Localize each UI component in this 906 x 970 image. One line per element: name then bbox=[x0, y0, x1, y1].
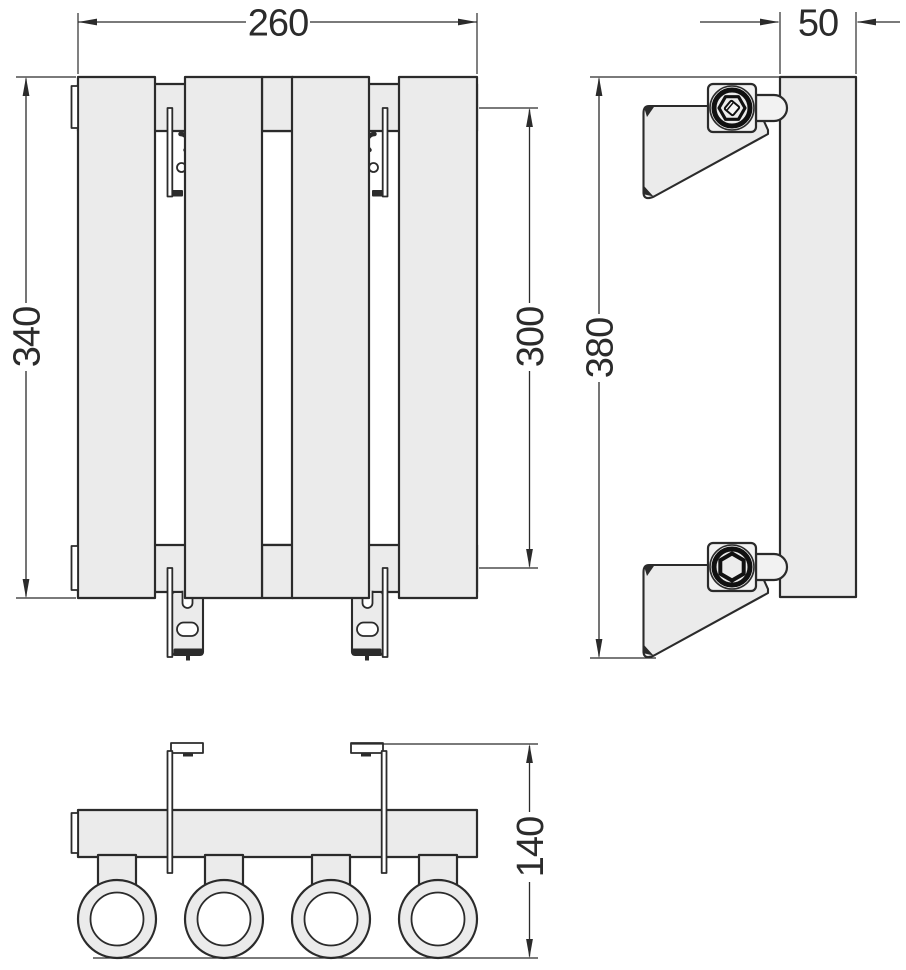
dim-arrowhead-left-icon bbox=[857, 19, 876, 26]
tube-section-inner bbox=[412, 893, 465, 946]
bracket-hook bbox=[171, 743, 203, 753]
bracket-foot-tick bbox=[186, 656, 190, 661]
dim-arrowhead-left-icon bbox=[78, 19, 97, 26]
bracket-oval-hole bbox=[177, 623, 198, 637]
dim-arrowhead-down-icon bbox=[526, 939, 533, 958]
tube-section-inner bbox=[198, 893, 251, 946]
radiator-panel-4 bbox=[399, 77, 477, 598]
radiator-panel-3 bbox=[292, 77, 369, 598]
bracket-rod bbox=[383, 108, 388, 197]
bracket-rod bbox=[382, 751, 387, 873]
dim-arrowhead-down-icon bbox=[526, 549, 533, 568]
dimension-port-spacing: 300 bbox=[479, 108, 552, 568]
bracket-rod bbox=[168, 568, 173, 657]
radiator-panel-2 bbox=[185, 77, 262, 598]
radiator-panel-1 bbox=[78, 77, 155, 598]
technical-drawing-page: 260 340 300 bbox=[0, 0, 906, 970]
plug-fitting-square-drive bbox=[708, 84, 756, 132]
dimension-side-depth: 50 bbox=[700, 3, 900, 74]
dim-arrowhead-right-icon bbox=[458, 19, 477, 26]
bracket-rod bbox=[168, 108, 173, 197]
bracket-rod bbox=[383, 568, 388, 657]
bracket-foot bbox=[352, 649, 382, 656]
bracket-rod bbox=[168, 751, 173, 873]
bottom-view bbox=[72, 743, 478, 958]
convector-fin-bottom bbox=[262, 545, 293, 598]
bracket-foot bbox=[174, 649, 204, 656]
dim-label-side-depth: 50 bbox=[798, 3, 838, 45]
side-tab bbox=[72, 813, 79, 853]
dimension-front-height: 340 bbox=[7, 77, 76, 598]
hex-plug bbox=[720, 554, 743, 581]
side-tab-top bbox=[72, 86, 79, 128]
bracket-oval-hole bbox=[357, 623, 378, 637]
dim-label-side-height: 380 bbox=[580, 318, 622, 378]
convector-fin-top bbox=[262, 77, 293, 131]
collector-bar bbox=[78, 810, 477, 857]
dim-label-front-width: 260 bbox=[248, 3, 308, 45]
technical-drawing-canvas: 260 340 300 bbox=[0, 0, 906, 970]
dim-label-front-height: 340 bbox=[7, 307, 49, 367]
bracket-hook-tick bbox=[183, 753, 193, 757]
side-view bbox=[643, 77, 857, 657]
tube-section-inner bbox=[91, 893, 144, 946]
dim-arrowhead-down-icon bbox=[596, 639, 603, 658]
dim-label-bottom-height: 140 bbox=[510, 817, 552, 877]
front-view bbox=[72, 77, 478, 661]
side-tab-bottom bbox=[72, 546, 79, 590]
dim-label-port-spacing: 300 bbox=[510, 307, 552, 367]
dim-arrowhead-up-icon bbox=[596, 77, 603, 96]
dimension-front-width: 260 bbox=[78, 3, 477, 74]
bracket-hook-tick bbox=[361, 753, 371, 757]
bracket-foot-tick bbox=[365, 656, 369, 661]
tube-section-inner bbox=[305, 893, 358, 946]
dim-arrowhead-up-icon bbox=[526, 744, 533, 763]
dim-arrowhead-up-icon bbox=[526, 108, 533, 127]
connection-stub bbox=[756, 554, 787, 580]
dim-arrowhead-right-icon bbox=[760, 19, 779, 26]
tube-sections bbox=[78, 880, 477, 958]
dim-arrowhead-up-icon bbox=[23, 77, 30, 96]
connection-stub bbox=[756, 95, 787, 121]
side-bracket-bottom bbox=[643, 543, 788, 657]
dim-arrowhead-down-icon bbox=[23, 579, 30, 598]
side-bracket-top bbox=[643, 84, 788, 198]
plug-fitting-hex bbox=[708, 543, 756, 591]
bracket-hole bbox=[369, 163, 378, 172]
side-panel bbox=[780, 77, 856, 597]
